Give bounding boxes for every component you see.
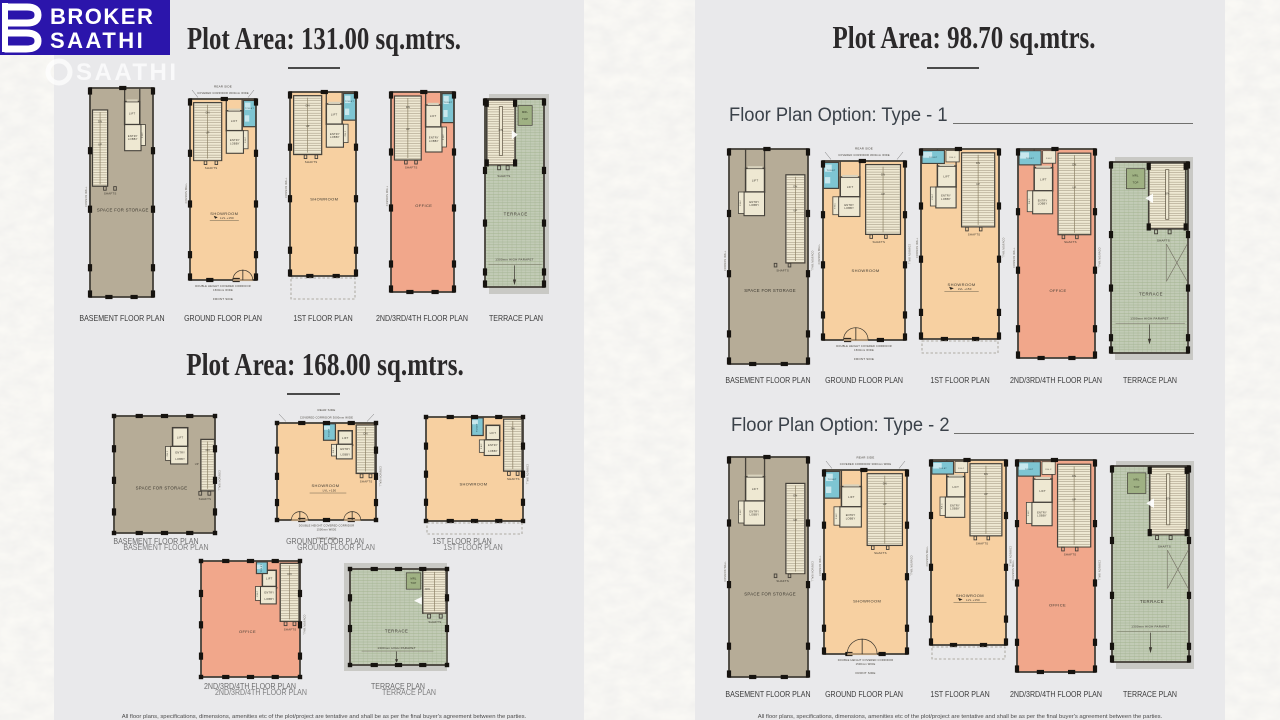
svg-text:SHAFTS: SHAFTS bbox=[776, 579, 789, 583]
svg-text:COMMON WALL: COMMON WALL bbox=[1013, 247, 1016, 268]
svg-text:LOBBY: LOBBY bbox=[488, 449, 498, 453]
svg-text:LIFT: LIFT bbox=[943, 175, 950, 179]
svg-text:LIFT: LIFT bbox=[129, 111, 136, 115]
svg-text:TOP: TOP bbox=[411, 581, 417, 585]
svg-text:SHAFTS: SHAFTS bbox=[305, 160, 318, 164]
svg-text:DN: DN bbox=[306, 104, 310, 108]
svg-text:LOBBY: LOBBY bbox=[429, 139, 439, 143]
svg-text:F.H.C: F.H.C bbox=[245, 136, 247, 142]
svg-text:TOILET: TOILET bbox=[827, 170, 836, 172]
svg-text:F.H.C: F.H.C bbox=[836, 513, 838, 519]
svg-text:1500mm WIDE: 1500mm WIDE bbox=[317, 528, 337, 532]
svg-text:DN: DN bbox=[511, 427, 515, 431]
svg-text:LIFT: LIFT bbox=[1040, 178, 1047, 182]
svg-text:1300mm HIGH PARAPET: 1300mm HIGH PARAPET bbox=[377, 646, 415, 650]
svg-text:TOILET: TOILET bbox=[476, 423, 478, 432]
svg-text:TOP: TOP bbox=[1133, 180, 1139, 184]
svg-text:LOBBY: LOBBY bbox=[941, 197, 951, 201]
svg-text:SHAFTS: SHAFTS bbox=[872, 240, 885, 244]
svg-text:F.H.C: F.H.C bbox=[932, 193, 934, 199]
svg-text:SPACE FOR STORAGE: SPACE FOR STORAGE bbox=[744, 592, 796, 597]
svg-text:F.H.C: F.H.C bbox=[481, 443, 483, 449]
svg-text:LIFT: LIFT bbox=[266, 577, 273, 581]
svg-text:SPACE FOR STORAGE: SPACE FOR STORAGE bbox=[97, 207, 149, 212]
svg-text:SHAFTS: SHAFTS bbox=[968, 232, 981, 236]
svg-text:UP: UP bbox=[306, 124, 310, 128]
svg-text:ENTRY: ENTRY bbox=[488, 443, 498, 447]
svg-text:SHAFTS: SHAFTS bbox=[976, 541, 989, 545]
svg-text:SHOWROOM: SHOWROOM bbox=[853, 599, 881, 604]
svg-text:OFFICE: OFFICE bbox=[239, 629, 256, 634]
svg-text:LIFT: LIFT bbox=[848, 495, 855, 499]
svg-text:OFFICE: OFFICE bbox=[1049, 288, 1066, 293]
svg-text:TOP: TOP bbox=[522, 117, 528, 121]
svg-text:F.H.C: F.H.C bbox=[1028, 510, 1030, 516]
svg-text:SHAFTS: SHAFTS bbox=[776, 269, 789, 273]
svg-text:LIFT: LIFT bbox=[342, 436, 349, 440]
svg-text:COMMON WALL: COMMON WALL bbox=[909, 555, 912, 576]
svg-text:DN: DN bbox=[1165, 192, 1169, 196]
svg-text:OFFICE: OFFICE bbox=[1049, 602, 1066, 607]
svg-text:LOBBY: LOBBY bbox=[846, 516, 856, 520]
svg-text:COMMON WALL: COMMON WALL bbox=[819, 555, 822, 576]
svg-text:TERRACE: TERRACE bbox=[504, 212, 528, 217]
svg-text:REAR SIDE: REAR SIDE bbox=[318, 408, 336, 412]
svg-text:COMMON WALL: COMMON WALL bbox=[302, 615, 305, 636]
svg-text:DN: DN bbox=[984, 472, 988, 476]
svg-text:LOBBY: LOBBY bbox=[230, 141, 240, 145]
svg-text:F.H.C: F.H.C bbox=[443, 134, 445, 140]
svg-text:ENTRY: ENTRY bbox=[175, 450, 185, 454]
svg-text:LVL +150: LVL +150 bbox=[966, 598, 980, 602]
svg-text:UP: UP bbox=[793, 518, 797, 522]
svg-text:COMMON WALL: COMMON WALL bbox=[185, 182, 188, 203]
svg-text:SHOWROOM: SHOWROOM bbox=[310, 197, 338, 202]
svg-text:1300mm HIGH PARAPET: 1300mm HIGH PARAPET bbox=[1131, 625, 1169, 629]
svg-text:SHAFTS: SHAFTS bbox=[104, 192, 117, 196]
svg-text:FRONT SIDE: FRONT SIDE bbox=[213, 297, 233, 301]
svg-text:DN: DN bbox=[499, 128, 503, 132]
svg-text:LVL +150: LVL +150 bbox=[323, 489, 337, 493]
svg-text:TOILET: TOILET bbox=[345, 101, 354, 103]
svg-text:TOILET: TOILET bbox=[245, 108, 254, 110]
svg-text:DN: DN bbox=[425, 587, 429, 591]
svg-text:F.H.C: F.H.C bbox=[1046, 158, 1052, 160]
svg-text:SHAFTS: SHAFTS bbox=[874, 551, 887, 555]
svg-text:LOBBY: LOBBY bbox=[749, 513, 759, 517]
svg-text:MRL: MRL bbox=[1133, 173, 1139, 177]
svg-text:F.H.C: F.H.C bbox=[1029, 198, 1031, 204]
svg-text:COVERED CORRIDOR 3000mm WIDE: COVERED CORRIDOR 3000mm WIDE bbox=[838, 153, 890, 157]
svg-text:COMMON WALL: COMMON WALL bbox=[724, 250, 727, 271]
svg-text:1300mm HIGH PARAPET: 1300mm HIGH PARAPET bbox=[495, 258, 533, 262]
svg-text:TOILET: TOILET bbox=[929, 157, 938, 159]
svg-text:F.H.C: F.H.C bbox=[1046, 469, 1052, 471]
svg-text:UP: UP bbox=[881, 192, 885, 196]
svg-text:F.H.C: F.H.C bbox=[950, 157, 956, 159]
svg-text:DOUBLE HEIGHT COVERED CORRIDOR: DOUBLE HEIGHT COVERED CORRIDOR bbox=[299, 524, 355, 528]
svg-text:TERRACE: TERRACE bbox=[385, 628, 409, 633]
svg-text:TERRACE: TERRACE bbox=[1139, 292, 1163, 297]
svg-text:COMMON WALL: COMMON WALL bbox=[378, 466, 381, 487]
svg-text:TOILET: TOILET bbox=[939, 468, 948, 470]
svg-text:LOBBY: LOBBY bbox=[844, 206, 854, 210]
svg-text:F.H.C: F.H.C bbox=[740, 509, 742, 515]
svg-text:DN: DN bbox=[793, 494, 797, 498]
svg-text:F.H.C: F.H.C bbox=[740, 200, 742, 206]
svg-text:LOBBY: LOBBY bbox=[340, 453, 350, 457]
svg-text:LIFT: LIFT bbox=[752, 178, 759, 182]
svg-text:TOILET: TOILET bbox=[1025, 469, 1034, 471]
svg-text:UP: UP bbox=[406, 127, 410, 131]
svg-text:LVL +150: LVL +150 bbox=[220, 216, 234, 220]
svg-text:SHAFTS: SHAFTS bbox=[284, 627, 297, 631]
svg-text:F.H.C: F.H.C bbox=[942, 503, 944, 509]
svg-text:DN: DN bbox=[881, 172, 885, 176]
svg-text:COMMON WALL: COMMON WALL bbox=[1012, 560, 1015, 581]
svg-text:F.H.C: F.H.C bbox=[835, 203, 837, 209]
svg-text:LOBBY: LOBBY bbox=[1038, 202, 1048, 206]
svg-text:REAR SIDE: REAR SIDE bbox=[214, 85, 232, 89]
svg-text:LIFT: LIFT bbox=[752, 487, 759, 491]
svg-text:COMMON WALL: COMMON WALL bbox=[1001, 238, 1004, 259]
svg-text:COMMON WALL: COMMON WALL bbox=[916, 237, 919, 258]
svg-text:1500mm WIDE: 1500mm WIDE bbox=[213, 288, 233, 292]
svg-text:COMMON WALL: COMMON WALL bbox=[724, 561, 727, 582]
svg-text:COMMON WALL: COMMON WALL bbox=[386, 185, 389, 206]
svg-text:SHOWROOM: SHOWROOM bbox=[311, 483, 339, 488]
svg-text:SHAFTS: SHAFTS bbox=[1158, 544, 1171, 548]
svg-text:LOBBY: LOBBY bbox=[1037, 514, 1047, 518]
svg-text:LOBBY: LOBBY bbox=[264, 597, 274, 601]
svg-text:UP: UP bbox=[984, 492, 988, 496]
svg-text:SHOWROOM: SHOWROOM bbox=[852, 268, 880, 273]
svg-text:ENTRY: ENTRY bbox=[264, 591, 274, 595]
svg-text:DN: DN bbox=[793, 185, 797, 189]
svg-text:LIFT: LIFT bbox=[231, 119, 238, 123]
svg-text:SHAFTS: SHAFTS bbox=[405, 166, 418, 170]
svg-text:DN: DN bbox=[206, 111, 210, 115]
svg-text:LOBBY: LOBBY bbox=[950, 507, 960, 511]
svg-text:TOILET: TOILET bbox=[443, 102, 452, 104]
svg-text:FRONT SIDE: FRONT SIDE bbox=[854, 357, 874, 361]
svg-text:COMMON WALL: COMMON WALL bbox=[85, 186, 88, 207]
svg-text:DN: DN bbox=[288, 572, 292, 576]
svg-text:SHAFTS: SHAFTS bbox=[360, 479, 373, 483]
svg-text:TERRACE: TERRACE bbox=[1140, 599, 1164, 604]
svg-text:UP: UP bbox=[976, 182, 980, 186]
svg-text:LVL +150: LVL +150 bbox=[958, 287, 972, 291]
svg-text:COMMON WALL: COMMON WALL bbox=[926, 546, 929, 567]
svg-text:TOILET: TOILET bbox=[1026, 158, 1035, 160]
svg-text:DOUBLE HEIGHT COVERED CORRIDOR: DOUBLE HEIGHT COVERED CORRIDOR bbox=[195, 284, 251, 288]
svg-text:DN: DN bbox=[1072, 474, 1076, 478]
svg-text:LIFT: LIFT bbox=[847, 185, 854, 189]
svg-text:LIFT: LIFT bbox=[177, 435, 184, 439]
svg-text:F.H.C: F.H.C bbox=[333, 447, 335, 453]
svg-text:DN: DN bbox=[1166, 496, 1170, 500]
svg-text:UP: UP bbox=[1072, 186, 1076, 190]
svg-text:MRL: MRL bbox=[410, 577, 416, 581]
svg-text:TOP: TOP bbox=[1134, 485, 1140, 489]
svg-text:DN: DN bbox=[364, 432, 368, 436]
svg-text:F.H.C: F.H.C bbox=[257, 590, 259, 596]
svg-text:UP: UP bbox=[98, 143, 102, 147]
svg-text:LOBBY: LOBBY bbox=[330, 135, 340, 139]
svg-text:UP: UP bbox=[206, 130, 210, 134]
svg-text:COMMON WALL: COMMON WALL bbox=[525, 464, 528, 485]
svg-text:SHAFTS: SHAFTS bbox=[507, 477, 520, 481]
svg-text:DN: DN bbox=[406, 105, 410, 109]
svg-text:SHAFTS: SHAFTS bbox=[1064, 240, 1077, 244]
svg-text:DOUBLE HEIGHT COVERED CORRIDOR: DOUBLE HEIGHT COVERED CORRIDOR bbox=[836, 344, 892, 348]
svg-text:SHAFTS: SHAFTS bbox=[1064, 552, 1077, 556]
svg-text:COVERED CORRIDOR 3000mm WIDE: COVERED CORRIDOR 3000mm WIDE bbox=[197, 91, 249, 95]
svg-text:F.H.C: F.H.C bbox=[167, 450, 169, 456]
svg-text:LOBBY: LOBBY bbox=[128, 137, 138, 141]
svg-text:DN: DN bbox=[1072, 163, 1076, 167]
svg-text:LIFT: LIFT bbox=[490, 431, 497, 435]
svg-text:LOBBY: LOBBY bbox=[749, 203, 759, 207]
svg-text:SPACE FOR STORAGE: SPACE FOR STORAGE bbox=[136, 486, 188, 491]
svg-text:DOUBLE HEIGHT COVERED CORRIDOR: DOUBLE HEIGHT COVERED CORRIDOR bbox=[838, 658, 894, 662]
svg-text:LIFT: LIFT bbox=[1039, 489, 1046, 493]
svg-text:REAR SIDE: REAR SIDE bbox=[857, 456, 875, 460]
svg-text:SHAFTS: SHAFTS bbox=[497, 174, 510, 178]
svg-text:SHAFTS: SHAFTS bbox=[199, 497, 212, 501]
svg-text:1500mm WIDE: 1500mm WIDE bbox=[854, 348, 874, 352]
svg-text:F.H.C: F.H.C bbox=[345, 130, 347, 136]
svg-text:LIFT: LIFT bbox=[430, 114, 437, 118]
svg-text:DN: DN bbox=[206, 448, 210, 452]
svg-text:TOILET: TOILET bbox=[828, 479, 837, 481]
svg-text:DN: DN bbox=[883, 482, 887, 486]
svg-text:F.H.C: F.H.C bbox=[142, 132, 144, 138]
svg-text:1500mm WIDE: 1500mm WIDE bbox=[856, 662, 876, 666]
svg-text:TOILET: TOILET bbox=[261, 564, 263, 573]
svg-text:COVERED CORRIDOR 3000mm WIDE: COVERED CORRIDOR 3000mm WIDE bbox=[300, 416, 353, 420]
svg-text:SHAFTS: SHAFTS bbox=[1157, 238, 1170, 242]
svg-text:COMMON WALL: COMMON WALL bbox=[818, 243, 821, 264]
svg-text:DN: DN bbox=[98, 120, 102, 124]
svg-text:TOILET: TOILET bbox=[329, 428, 331, 437]
svg-text:LIFT: LIFT bbox=[331, 112, 338, 116]
svg-text:REAR SIDE: REAR SIDE bbox=[855, 147, 873, 151]
svg-text:UP: UP bbox=[793, 208, 797, 212]
svg-text:SHOWROOM: SHOWROOM bbox=[459, 482, 487, 487]
svg-text:SHAFTS: SHAFTS bbox=[428, 620, 441, 624]
svg-text:COMMON WALL: COMMON WALL bbox=[285, 177, 288, 198]
svg-text:MRL: MRL bbox=[522, 110, 528, 114]
svg-text:UP: UP bbox=[1072, 497, 1076, 501]
svg-text:SHAFTS: SHAFTS bbox=[205, 166, 218, 170]
svg-text:OFFICE: OFFICE bbox=[415, 203, 432, 208]
svg-text:LOBBY: LOBBY bbox=[175, 457, 185, 461]
svg-text:UP: UP bbox=[883, 502, 887, 506]
svg-text:FRONT SIDE: FRONT SIDE bbox=[855, 671, 875, 675]
svg-text:F.H.C: F.H.C bbox=[958, 468, 964, 470]
svg-text:ENTRY: ENTRY bbox=[340, 447, 350, 451]
svg-text:COVERED CORRIDOR 3000mm WIDE: COVERED CORRIDOR 3000mm WIDE bbox=[840, 462, 892, 466]
svg-text:1300mm HIGH PARAPET: 1300mm HIGH PARAPET bbox=[1130, 317, 1168, 321]
svg-text:COMMON WALL: COMMON WALL bbox=[217, 470, 220, 491]
svg-text:DN: DN bbox=[976, 161, 980, 165]
svg-text:UP: UP bbox=[195, 462, 199, 466]
svg-text:SPACE FOR STORAGE: SPACE FOR STORAGE bbox=[744, 288, 796, 293]
svg-text:MRL: MRL bbox=[1134, 478, 1140, 482]
svg-text:LIFT: LIFT bbox=[953, 485, 960, 489]
